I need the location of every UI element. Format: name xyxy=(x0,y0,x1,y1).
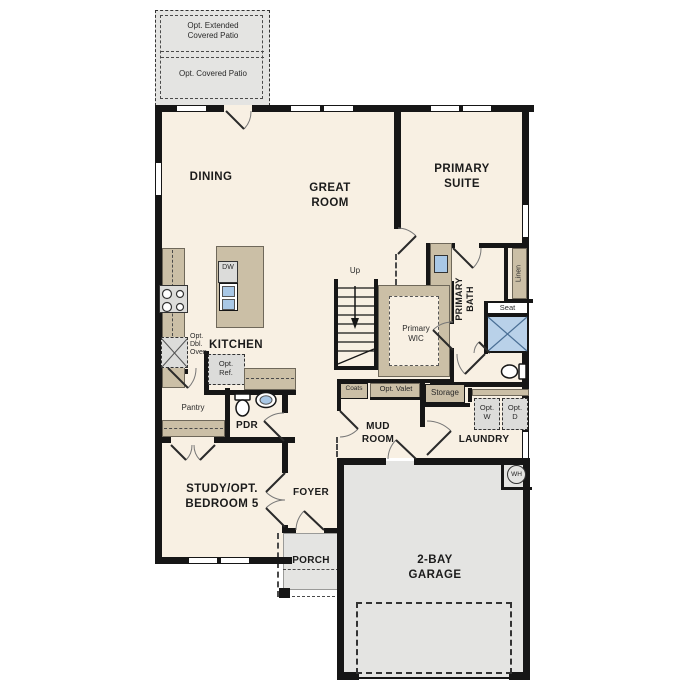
wall xyxy=(420,403,470,407)
wall xyxy=(414,458,530,465)
wall xyxy=(225,388,230,440)
great-room-label: GREAT ROOM xyxy=(300,181,360,211)
foyer-label: FOYER xyxy=(291,487,331,500)
wall xyxy=(282,528,296,533)
foyer-floor xyxy=(289,437,337,533)
shower xyxy=(486,315,529,353)
opt-double-oven xyxy=(161,337,188,368)
opening xyxy=(395,254,397,285)
wall xyxy=(394,105,401,229)
door-opening xyxy=(224,105,252,112)
porch-label: PORCH xyxy=(290,555,332,568)
wall xyxy=(155,437,171,443)
vanity-sink xyxy=(434,255,448,273)
pantry-label: Pantry xyxy=(171,403,215,413)
opt-covered-patio-label: Opt. Covered Patio xyxy=(166,69,260,79)
window xyxy=(188,557,218,564)
mud-room-label: MUD ROOM xyxy=(354,421,402,446)
opt-refrigerator-label: Opt. Ref. xyxy=(213,360,239,377)
wall xyxy=(334,366,378,370)
coats-label: Coats xyxy=(341,385,367,392)
kitchen-counter xyxy=(244,368,296,390)
pdr-label: PDR xyxy=(232,420,262,433)
window xyxy=(155,162,162,196)
counter-line xyxy=(246,378,294,379)
wall xyxy=(282,388,288,413)
dishwasher-label: DW xyxy=(219,264,237,272)
laundry-label: LAUNDRY xyxy=(456,434,512,447)
sink-basin xyxy=(222,286,235,297)
kitchen-label: KITCHEN xyxy=(202,338,270,353)
stairs-up-label: Up xyxy=(341,266,369,276)
garage-threshold xyxy=(355,677,515,679)
dining-label: DINING xyxy=(180,170,242,185)
opt-washer-label: Opt. W xyxy=(478,404,496,421)
wall xyxy=(501,487,532,490)
patio-divider xyxy=(161,57,264,58)
linen-label: Linen xyxy=(516,252,527,296)
wall xyxy=(337,458,386,465)
garage-door-outline xyxy=(356,602,512,674)
window xyxy=(290,105,321,112)
window xyxy=(220,557,250,564)
porch-extension-outline xyxy=(283,569,339,570)
water-heater-label: WH xyxy=(511,471,522,478)
primary-bath-label: PRIMARY BATH xyxy=(454,267,480,331)
sink-basin xyxy=(222,299,235,310)
opening xyxy=(336,437,338,457)
opt-dryer-label: Opt. D xyxy=(506,404,524,421)
wall xyxy=(337,458,344,680)
primary-suite-label: PRIMARY SUITE xyxy=(430,162,494,192)
laundry-shelf xyxy=(472,389,529,396)
window xyxy=(522,204,529,238)
patio-divider xyxy=(161,51,264,52)
window xyxy=(176,105,207,112)
window xyxy=(323,105,354,112)
water-heater: WH xyxy=(507,465,526,484)
opt-extended-patio-label: Opt. Extended Covered Patio xyxy=(178,21,248,40)
wall xyxy=(282,443,288,473)
primary-wic-label: Primary WIC xyxy=(394,324,438,343)
wall xyxy=(504,243,508,303)
window xyxy=(430,105,460,112)
floor-plan: Opt. Extended Covered Patio Opt. Covered… xyxy=(0,0,687,687)
wall xyxy=(523,458,530,680)
study-label: STUDY/OPT. BEDROOM 5 xyxy=(176,482,268,512)
seat-label: Seat xyxy=(487,304,528,313)
wall xyxy=(334,279,338,370)
window xyxy=(462,105,492,112)
wall xyxy=(370,397,420,400)
porch-pier xyxy=(279,588,290,598)
cooktop xyxy=(159,285,188,313)
opt-valet-label: Opt. Valet xyxy=(372,385,420,394)
window xyxy=(522,431,529,459)
wall xyxy=(501,461,504,489)
storage-label: Storage xyxy=(426,388,464,398)
garage-label: 2-BAY GARAGE xyxy=(398,553,472,583)
opt-double-oven-label: Opt. Dbl. Oven xyxy=(190,333,210,357)
shelf-line xyxy=(164,428,223,429)
